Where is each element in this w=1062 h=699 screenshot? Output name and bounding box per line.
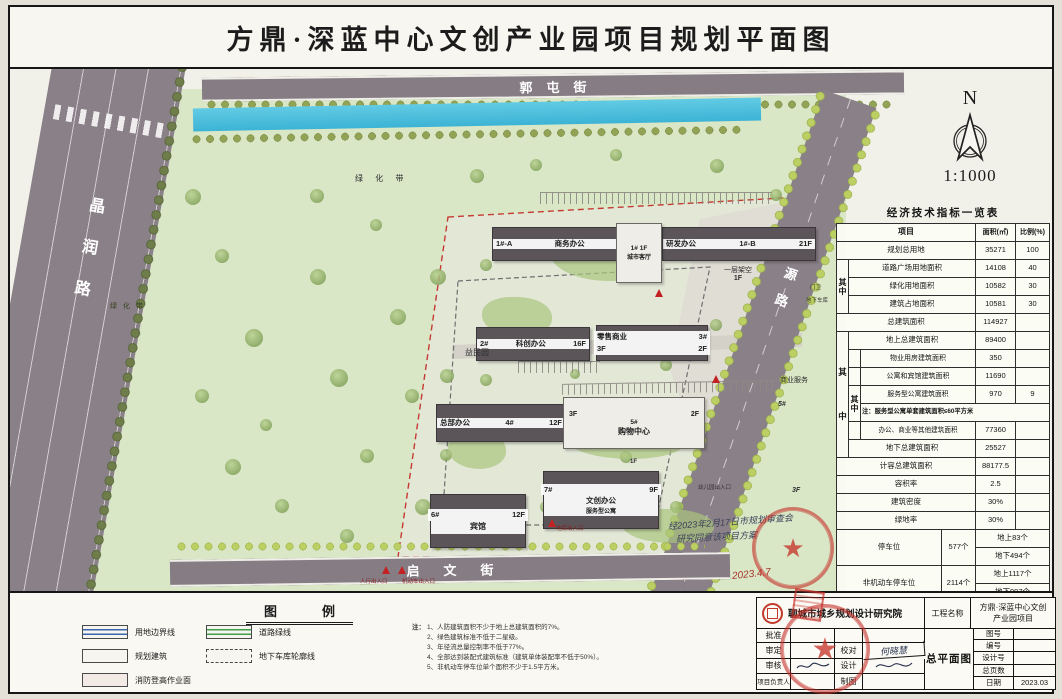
project-name-line1: 方鼎·深蓝中心文创: [971, 602, 1055, 613]
gate-label: 门卫: [810, 283, 821, 291]
building-7: 7# 9F 文创办公 服务型公寓: [543, 471, 659, 529]
project-name-line2: 产业园项目: [971, 613, 1055, 624]
north-indicator: N 1:1000: [910, 87, 1030, 186]
legend-label: 规划建筑: [135, 651, 167, 662]
building-name: 总部办公: [440, 418, 470, 428]
row-label: 公寓和宾馆建筑面积: [861, 368, 976, 386]
tree: [360, 449, 374, 463]
tree: [260, 419, 272, 431]
row-area: 2.5: [976, 476, 1016, 494]
building-floors: 3F: [597, 344, 606, 354]
row-sub: 地上83个: [976, 530, 1050, 548]
row-label: 物业用房建筑面积: [861, 350, 976, 368]
meta-value: [1014, 628, 1055, 640]
tree: [480, 259, 492, 271]
row-ratio: 40: [1016, 260, 1050, 278]
legend-item: 用地边界线: [82, 625, 175, 639]
building-name: 宾馆: [431, 521, 525, 534]
vehicle-entrance-marker: [398, 566, 406, 574]
building-floors: 2F: [691, 411, 699, 418]
tree: [275, 499, 289, 513]
road-green-line-swatch: [206, 625, 252, 639]
approval-seal: ★: [752, 507, 834, 589]
legend-label: 用地边界线: [135, 627, 175, 638]
row-ratio: 30: [1016, 278, 1050, 296]
indicators-table: 项目面积(㎡)比例(%) 规划总用地35271100 其中道路广场用地面积141…: [836, 223, 1050, 593]
parking-row: [518, 361, 600, 373]
f1-label: 1F: [630, 459, 637, 465]
building-id: 1#: [631, 245, 638, 252]
col-area: 面积(㎡): [976, 224, 1016, 242]
tree: [390, 309, 406, 325]
meta-value: [1014, 665, 1055, 677]
row-label: 规划总用地: [837, 242, 976, 260]
tree: [330, 369, 348, 387]
row-count: 577个: [942, 530, 976, 566]
garage-label: 地下车库: [806, 296, 828, 304]
building-floors: 3F: [569, 411, 577, 418]
building-floors: 2F: [698, 344, 707, 354]
legend-label: 道路绿线: [259, 627, 291, 638]
row-label: 绿地率: [837, 512, 976, 530]
tree: [710, 319, 722, 331]
road-top-name: 郭屯街: [505, 76, 600, 96]
tree: [610, 149, 622, 161]
indent-cell: [849, 422, 861, 440]
legend-item: 规划建筑: [82, 649, 167, 663]
notes-block: 注： 1、人防建筑面积不少于地上总建筑面积的7%。 2、绿色建筑标准不低于二星级…: [412, 623, 603, 673]
f3-label: 3F: [792, 487, 800, 494]
row-label: 容积率: [837, 476, 976, 494]
row-area: 11690: [976, 368, 1016, 386]
row-area: 88177.5: [976, 458, 1016, 476]
row-label: 道路广场用地面积: [849, 260, 976, 278]
pedestrian-entrance-marker: [382, 566, 390, 574]
row-area: 10581: [976, 296, 1016, 314]
review-seal: [791, 588, 825, 622]
drawing-name-cell: 总平面图: [925, 628, 974, 689]
legend-item: 地下车库轮廓线: [206, 649, 315, 663]
north-letter: N: [910, 87, 1030, 110]
zhong: 中: [850, 404, 859, 413]
row-area: 77360: [976, 422, 1016, 440]
tree: [245, 329, 263, 347]
building-id: 1#-B: [739, 239, 755, 249]
building-id: 6#: [431, 510, 439, 520]
building-3: 零售商业 3# 3F 2F: [596, 325, 708, 361]
meta-value: [1014, 652, 1055, 664]
indicators-title: 经济技术指标一览表: [836, 205, 1050, 220]
building-name: 科创办公: [516, 339, 546, 349]
entrance-marker: [712, 375, 720, 383]
building-6: 6# 12F 宾馆: [430, 494, 526, 548]
row-area: 14108: [976, 260, 1016, 278]
drawing-frame: 方鼎·深蓝中心文创产业园项目规划平面图 郭屯街: [8, 5, 1054, 694]
sign-cell: [863, 674, 925, 689]
row-label: 建筑占地面积: [849, 296, 976, 314]
tree: [530, 159, 542, 171]
building-sub-name: 服务型公寓: [544, 506, 658, 516]
garage-outline-swatch: [206, 649, 252, 663]
row-sub: 地下997个: [976, 584, 1050, 594]
planned-building-swatch: [82, 649, 128, 663]
greenbelt-label: 绿 化 带: [110, 301, 145, 311]
row-area: 30%: [976, 494, 1016, 512]
row-label: 办公、商业等其他建筑面积: [861, 422, 976, 440]
row-area: 114927: [976, 314, 1016, 332]
building-4: 总部办公 4# 12F: [436, 404, 566, 442]
notes-prefix: 注：: [412, 623, 425, 673]
building-1B: 研发办公 1#-B 21F: [662, 227, 816, 261]
row-area: 10582: [976, 278, 1016, 296]
meta-label: 图号: [974, 628, 1014, 640]
tree: [195, 389, 209, 403]
title-band: 方鼎·深蓝中心文创产业园项目规划平面图: [10, 7, 1052, 67]
compass-icon: [944, 112, 996, 164]
tree: [310, 269, 326, 285]
building-name: 零售商业: [597, 332, 627, 342]
meta-label: 总页数: [974, 665, 1014, 677]
qi: 其: [838, 368, 847, 377]
building-floors: 12F: [512, 510, 525, 520]
tree: [710, 159, 724, 173]
garage-entrance-marker: [548, 519, 556, 527]
note-line: 2、绿色建筑标准不低于二星级。: [427, 633, 603, 643]
meta-label: 日期: [974, 677, 1014, 689]
stilt-floor: 1F: [724, 275, 752, 282]
building-1-city-hall: 1# 1F 城市客厅: [616, 223, 662, 283]
row-label: 停车位: [837, 530, 942, 566]
title-block: 聊城市城乡规划设计研究院 工程名称 方鼎·深蓝中心文创 产业园项目 批准 审定校…: [756, 597, 1056, 690]
sign-label: 项目负责人: [757, 674, 791, 689]
greenbelt-label: 绿 化 带: [355, 173, 408, 184]
building-5: 3F 2F 5# 购物中心: [563, 397, 705, 449]
tree: [405, 389, 419, 403]
building-id: 5#: [564, 419, 704, 426]
qi: 其: [838, 278, 847, 287]
kindergarten-entrance-label: 幼儿园出入口: [698, 483, 731, 491]
building-floors: 9F: [649, 485, 658, 495]
row-ratio: 9: [1016, 386, 1050, 404]
legend-label: 地下车库轮廓线: [259, 651, 315, 662]
building-floors: 1F: [640, 245, 648, 252]
signature-scribble: [874, 660, 914, 672]
meta-value: [1014, 640, 1055, 652]
row-sub: 地下494个: [976, 548, 1050, 566]
building-id: 7#: [544, 485, 552, 495]
row-area: 35271: [976, 242, 1016, 260]
row-area: 350: [976, 350, 1016, 368]
row-label: 总建筑面积: [837, 314, 976, 332]
row-area: 970: [976, 386, 1016, 404]
row-label: 建筑密度: [837, 494, 976, 512]
parking-row: [540, 192, 772, 204]
tree: [480, 374, 492, 386]
row-label: 非机动车停车位: [837, 566, 942, 594]
sign-cell: [863, 659, 925, 674]
note-line: 1、人防建筑面积不少于地上总建筑面积的7%。: [427, 623, 603, 633]
park-name-label: 益民园: [465, 347, 489, 358]
building-name: 城市客厅: [617, 252, 661, 261]
building-name: 文创办公: [544, 495, 658, 506]
project-name-cell: 方鼎·深蓝中心文创 产业园项目: [971, 598, 1055, 628]
building-2: 2# 科创办公 16F: [476, 327, 590, 361]
drawing-meta-grid: 图号 编号 设计号 总页数 日期2023.03: [974, 628, 1055, 689]
row-ratio: 100: [1016, 242, 1050, 260]
row-label: 地下总建筑面积: [849, 440, 976, 458]
biz-service-label: 商业服务: [780, 375, 808, 385]
legend-item: 道路绿线: [206, 625, 291, 639]
building-name: 研发办公: [666, 239, 696, 249]
building-id: 1#-A: [496, 239, 512, 249]
tree: [370, 219, 382, 231]
building-floors: 21F: [799, 239, 812, 249]
row-area: 25527: [976, 440, 1016, 458]
legend-label: 消防登高作业面: [135, 675, 191, 686]
entrance-marker: [655, 289, 663, 297]
building-name: 商务办公: [555, 239, 585, 249]
note-line: 3、年径流总量控制率不低于77%。: [427, 643, 603, 653]
building-id: 4#: [505, 418, 513, 428]
row-sub: 地上1117个: [976, 566, 1050, 584]
note-line: 5、非机动车停车位单个面积不少于1.5平方米。: [427, 663, 603, 673]
qizhong-cell: 其中: [837, 260, 849, 314]
zhong: 中: [838, 412, 847, 421]
garage-entrance-label: 地库出入口: [556, 524, 584, 532]
biz-num-label: 5#: [778, 401, 786, 408]
vehicle-entrance-label: 机动车出入口: [402, 577, 435, 585]
row-label: 计容总建筑面积: [837, 458, 976, 476]
institute-logo-icon: [762, 603, 783, 624]
indent-cell: [849, 350, 861, 368]
qizhong-cell: 其中: [849, 386, 861, 422]
tree: [310, 189, 324, 203]
project-label-cell: 工程名称: [925, 598, 971, 628]
row-label: 服务型公寓建筑面积: [861, 386, 976, 404]
building-floors: 12F: [549, 418, 562, 428]
building-floors: 16F: [573, 339, 586, 349]
note-line: 4、全部达到装配式建筑标准（建筑单体装配率不低于50%）。: [427, 653, 603, 663]
row-label: 地上总建筑面积: [849, 332, 976, 350]
tree: [215, 249, 229, 263]
tree: [225, 459, 241, 475]
scale-label: 1:1000: [910, 166, 1030, 186]
stilt-text: 一层架空: [724, 265, 752, 275]
meta-label: 编号: [974, 640, 1014, 652]
zhong: 中: [838, 287, 847, 296]
row-label: 绿化用地面积: [849, 278, 976, 296]
pedestrian-entrance-label: 人行出入口: [360, 577, 388, 585]
qizhong-cell: 其中: [837, 332, 849, 458]
bottom-band: 图 例 用地边界线 道路绿线 规划建筑 地下车库轮廓线 消防登高作业面 注： 1…: [10, 593, 1052, 692]
tree: [440, 369, 454, 383]
row-area: 89400: [976, 332, 1016, 350]
tree: [185, 189, 201, 205]
notes-list: 1、人防建筑面积不少于地上总建筑面积的7%。 2、绿色建筑标准不低于二星级。 3…: [427, 623, 603, 673]
boundary-line-swatch: [82, 625, 128, 639]
tree: [340, 529, 354, 543]
table-note: 注：服务型公寓单套建筑面积≤60平方米: [861, 404, 1050, 422]
building-name: 购物中心: [564, 426, 704, 437]
row-ratio: 30: [1016, 296, 1050, 314]
col-ratio: 比例(%): [1016, 224, 1050, 242]
legend-item: 消防登高作业面: [82, 673, 191, 687]
tree: [430, 269, 446, 285]
meta-value: 2023.03: [1014, 677, 1055, 689]
meta-label: 设计号: [974, 652, 1014, 664]
qi: 其: [850, 395, 859, 404]
tree: [470, 169, 484, 183]
row-count: 2114个: [942, 566, 976, 594]
fire-access-swatch: [82, 673, 128, 687]
col-item: 项目: [837, 224, 976, 242]
plan-sheet: 方鼎·深蓝中心文创产业园项目规划平面图 郭屯街: [0, 0, 1062, 699]
building-id: 3#: [699, 332, 707, 342]
row-area: 30%: [976, 512, 1016, 530]
stilt-label: 一层架空 1F: [724, 265, 752, 282]
page-title: 方鼎·深蓝中心文创产业园项目规划平面图: [226, 18, 835, 57]
legend-title: 图 例: [246, 601, 353, 625]
site-plan-map: 郭屯街 晶润路 和源路 启文街: [10, 67, 1052, 593]
indent-cell: [849, 368, 861, 386]
